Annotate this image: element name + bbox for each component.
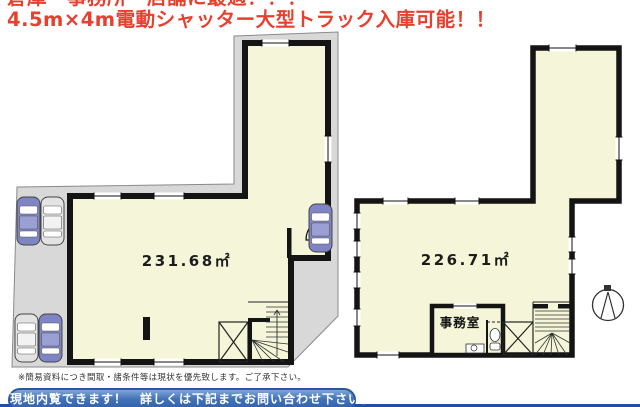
right-area-label: 226.71㎡ (421, 251, 511, 269)
car-icon (39, 314, 62, 362)
office-label: 事務室 (440, 315, 481, 330)
car-icon (309, 204, 332, 252)
floor-plan-canvas: 231.68㎡ (0, 0, 640, 407)
contact-banner-text: 現地内覧できます！ 詳しくは下記までお問い合わせ下さい。 (10, 390, 354, 407)
flyer-page: 倉庫・事務所・店舗に最適！！！ 4.5m×4m電動シャッター大型トラック入庫可能… (0, 0, 640, 407)
left-plan: 231.68㎡ (12, 32, 338, 367)
left-area-label: 231.68㎡ (142, 252, 232, 270)
car-icon (17, 197, 40, 245)
pillar (143, 317, 150, 340)
car-icon (41, 197, 64, 245)
car-icon (15, 314, 38, 362)
left-building-walls (70, 43, 328, 362)
contact-banner: 現地内覧できます！ 詳しくは下記までお問い合わせ下さい。 (8, 388, 356, 407)
right-plan: 226.71㎡ 事務室 (354, 45, 624, 359)
disclaimer-note: ※簡易資料につき間取・諸条件等は現状を優先致します。ご了承下さい。 (18, 371, 306, 383)
compass-icon (593, 285, 624, 321)
interior-wall (287, 228, 292, 258)
